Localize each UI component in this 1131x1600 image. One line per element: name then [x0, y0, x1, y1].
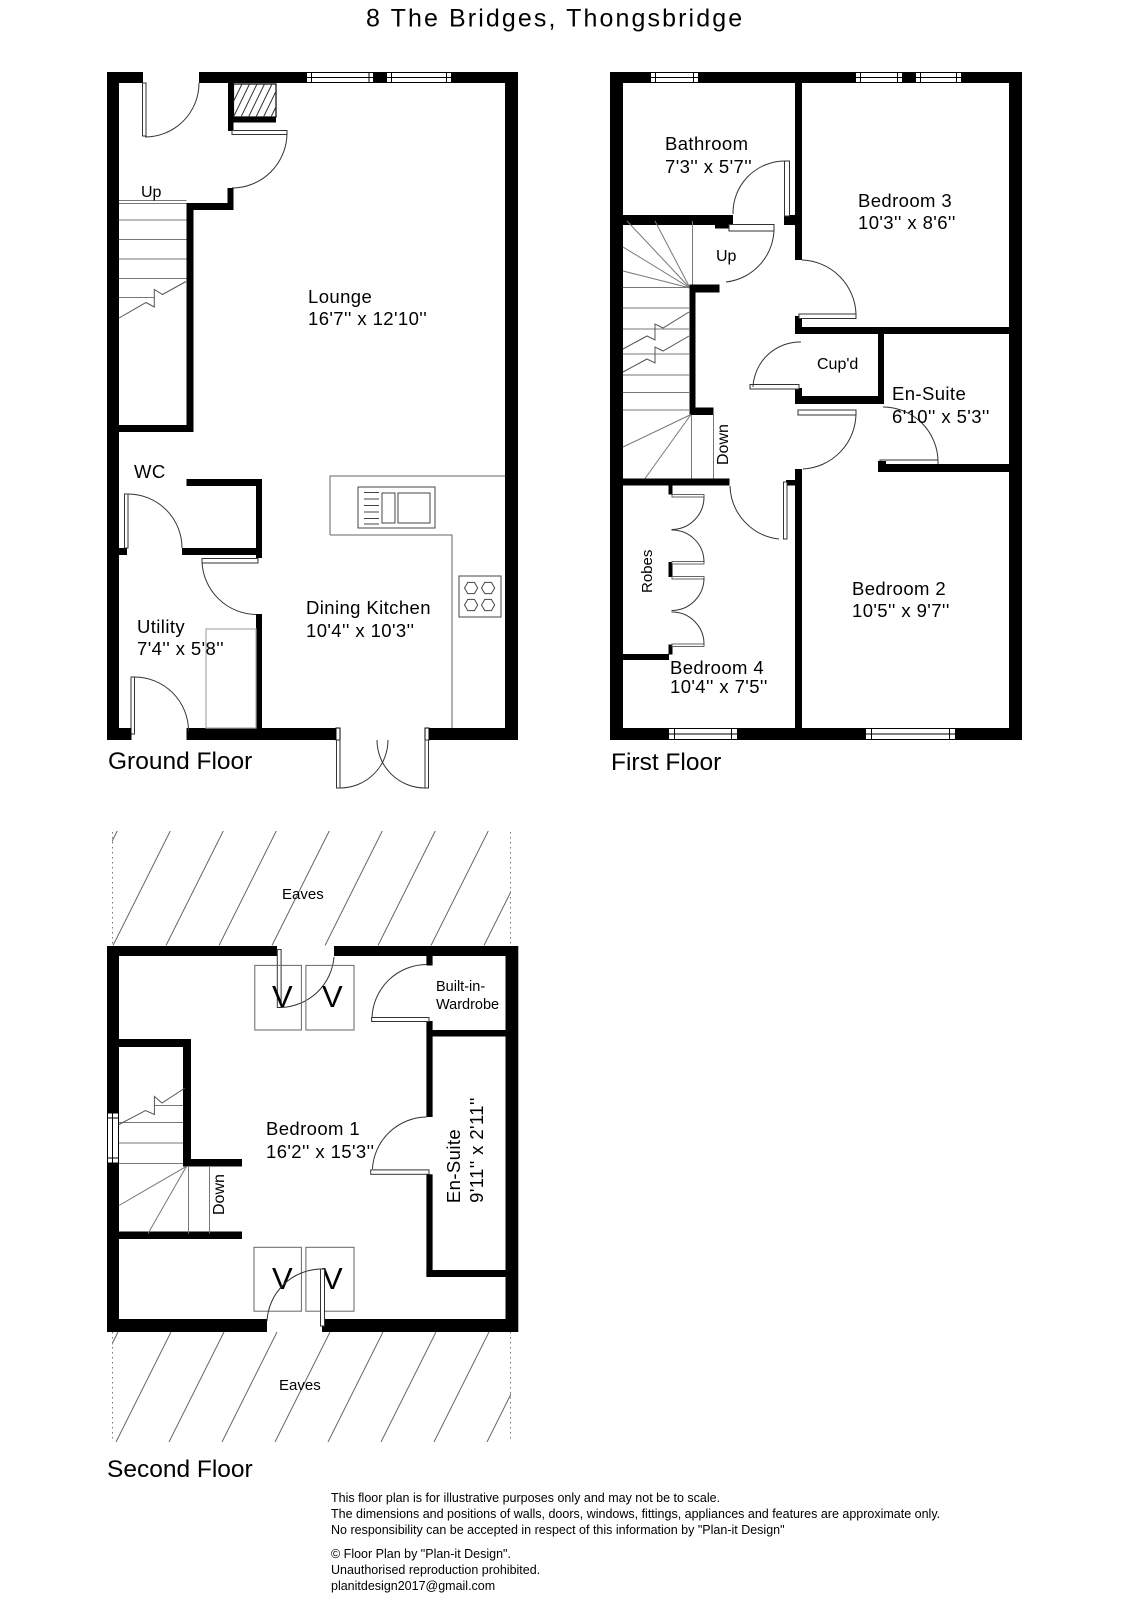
- svg-text:16'7'' x 12'10'': 16'7'' x 12'10'': [308, 308, 427, 329]
- svg-text:Eaves: Eaves: [279, 1377, 321, 1394]
- svg-text:6'10'' x 5'3'': 6'10'' x 5'3'': [892, 406, 990, 427]
- svg-text:V: V: [322, 979, 343, 1014]
- svg-text:Dining Kitchen: Dining Kitchen: [306, 597, 431, 618]
- svg-text:Robes: Robes: [639, 550, 656, 593]
- svg-text:10'4'' x 10'3'': 10'4'' x 10'3'': [306, 620, 414, 641]
- svg-text:Bedroom 1: Bedroom 1: [266, 1118, 360, 1139]
- svg-text:V: V: [272, 979, 293, 1014]
- svg-text:© Floor Plan by "Plan-it Desig: © Floor Plan by "Plan-it Design".: [331, 1547, 511, 1561]
- svg-text:Utility: Utility: [137, 616, 185, 637]
- svg-text:Wardrobe: Wardrobe: [436, 997, 499, 1013]
- svg-text:Down: Down: [211, 1174, 228, 1215]
- svg-text:10'3'' x 8'6'': 10'3'' x 8'6'': [858, 212, 956, 233]
- svg-text:En-Suite: En-Suite: [443, 1129, 464, 1203]
- svg-text:9'11'' x 2'11'': 9'11'' x 2'11'': [466, 1097, 487, 1203]
- svg-text:First Floor: First Floor: [611, 749, 721, 776]
- svg-text:7'4'' x 5'8'': 7'4'' x 5'8'': [137, 638, 224, 659]
- svg-text:V: V: [322, 1261, 343, 1296]
- svg-text:WC: WC: [134, 461, 166, 482]
- svg-text:This floor plan is for illustr: This floor plan is for illustrative purp…: [331, 1491, 720, 1505]
- svg-text:Cup'd: Cup'd: [817, 356, 858, 373]
- svg-text:Down: Down: [715, 424, 732, 465]
- svg-text:Bedroom 3: Bedroom 3: [858, 190, 952, 211]
- svg-text:10'4'' x 7'5'': 10'4'' x 7'5'': [670, 676, 768, 697]
- svg-text:16'2'' x 15'3'': 16'2'' x 15'3'': [266, 1141, 374, 1162]
- svg-text:10'5'' x 9'7'': 10'5'' x 9'7'': [852, 600, 950, 621]
- svg-text:The dimensions and positions o: The dimensions and positions of walls, d…: [331, 1507, 940, 1521]
- svg-text:planitdesign2017@gmail.com: planitdesign2017@gmail.com: [331, 1579, 495, 1593]
- svg-text:Bedroom 2: Bedroom 2: [852, 578, 946, 599]
- svg-text:Up: Up: [141, 184, 162, 201]
- svg-text:Eaves: Eaves: [282, 886, 324, 903]
- svg-text:Lounge: Lounge: [308, 286, 372, 307]
- svg-text:En-Suite: En-Suite: [892, 383, 966, 404]
- svg-text:Built-in-: Built-in-: [436, 979, 485, 995]
- svg-text:Second Floor: Second Floor: [107, 1456, 253, 1483]
- svg-text:V: V: [272, 1261, 293, 1296]
- svg-text:Ground Floor: Ground Floor: [108, 748, 252, 775]
- svg-text:Unauthorised reproduction proh: Unauthorised reproduction prohibited.: [331, 1563, 540, 1577]
- svg-text:Bathroom: Bathroom: [665, 133, 748, 154]
- svg-text:No responsibility can be accep: No responsibility can be accepted in res…: [331, 1523, 785, 1537]
- svg-text:7'3'' x 5'7'': 7'3'' x 5'7'': [665, 156, 752, 177]
- svg-text:Bedroom 4: Bedroom 4: [670, 657, 764, 678]
- svg-text:8 The Bridges, Thongsbridge: 8 The Bridges, Thongsbridge: [366, 5, 744, 33]
- svg-text:Up: Up: [716, 248, 737, 265]
